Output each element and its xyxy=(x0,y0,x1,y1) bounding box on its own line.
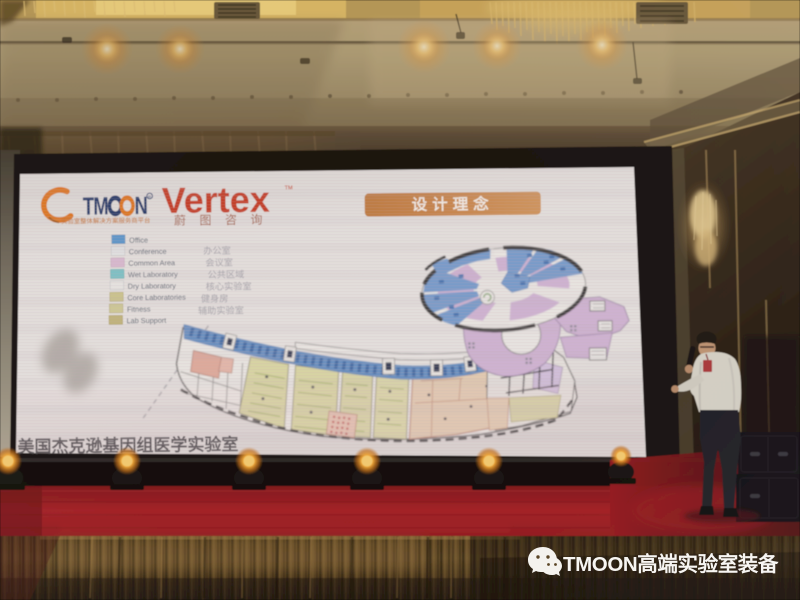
svg-text:TMOON高端实验室装备: TMOON高端实验室装备 xyxy=(563,552,779,576)
